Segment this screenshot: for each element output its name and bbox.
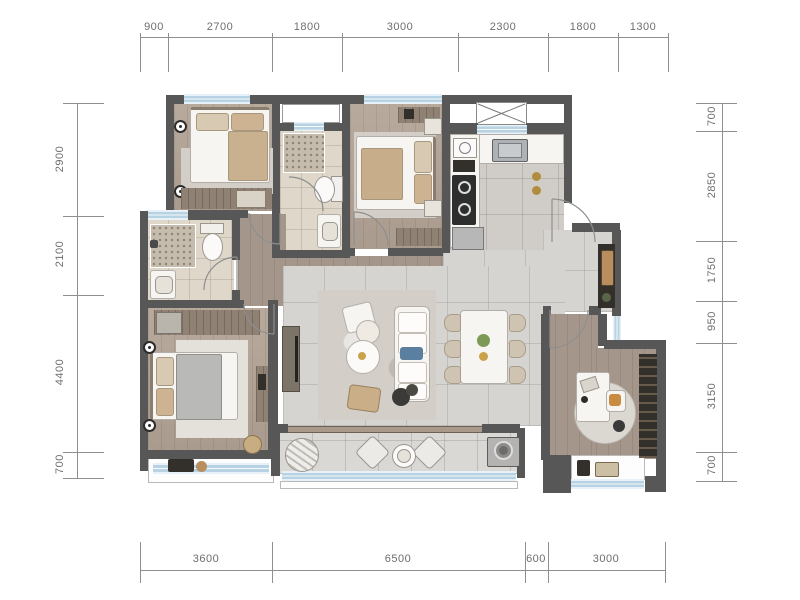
- duct-shaft: [476, 102, 527, 125]
- wall: [342, 95, 350, 258]
- sliding-door-track: [288, 426, 482, 433]
- dining-chair-icon: [444, 366, 461, 384]
- dim-tick: [140, 542, 141, 583]
- light-shaft: [282, 104, 340, 123]
- lounge-chair-icon: [285, 438, 319, 472]
- nightstand-icon: [424, 200, 442, 217]
- dim-label: 2900: [54, 131, 66, 187]
- dim-tick: [63, 295, 104, 296]
- kitchen-right-wall: [564, 95, 572, 203]
- dim-label: 1300: [613, 21, 673, 33]
- dim-label: 3000: [370, 21, 430, 33]
- dim-tick: [272, 542, 273, 583]
- floor-plan: 900 2700 1800 3000 2300 1800 1300 2900 2…: [0, 0, 800, 600]
- toilet-icon: [202, 233, 223, 261]
- dim-line-left: [77, 103, 78, 479]
- dim-tick: [668, 33, 669, 72]
- dim-label: 6500: [368, 553, 428, 565]
- fridge-icon: [452, 227, 484, 250]
- tv-icon: [295, 336, 298, 382]
- wall-lamp-icon: [143, 419, 156, 432]
- balcony-table-top-icon: [397, 449, 411, 463]
- dim-label: 700: [706, 88, 718, 144]
- dim-label: 2700: [190, 21, 250, 33]
- basin-icon: [155, 276, 173, 294]
- dim-label: 700: [706, 437, 718, 493]
- dresser-icon: [396, 228, 442, 246]
- balcony-sill: [280, 481, 518, 489]
- dim-label: 700: [54, 436, 66, 492]
- dim-label: 1800: [553, 21, 613, 33]
- dim-label: 2850: [706, 157, 718, 213]
- wall: [442, 95, 450, 253]
- shower-icon: [283, 133, 325, 173]
- dim-label: 1750: [706, 242, 718, 298]
- bathroom-b-window: [146, 210, 188, 220]
- dining-chair-icon: [444, 314, 461, 332]
- gold-bowl-icon: [358, 352, 366, 360]
- bedroom-1-left-wall: [166, 95, 174, 218]
- shower-head-icon: [150, 240, 158, 248]
- decor-icon: [404, 109, 414, 119]
- wall: [272, 95, 280, 258]
- dim-tick: [168, 33, 169, 72]
- wall-lamp-icon: [143, 341, 156, 354]
- plant-icon: [406, 384, 418, 396]
- dining-chair-icon: [509, 314, 526, 332]
- gold-knob-icon: [532, 172, 541, 181]
- stool-icon: [613, 420, 625, 432]
- dim-tick: [63, 216, 104, 217]
- chair-seat-icon: [609, 394, 621, 406]
- dim-tick: [458, 33, 459, 72]
- bookshelf-icon: [639, 354, 657, 458]
- cabinet-decor-icon: [601, 250, 614, 286]
- dim-tick: [272, 33, 273, 72]
- basin-icon: [322, 222, 338, 241]
- bathroom-a-window: [294, 122, 324, 131]
- niche-window: [613, 316, 621, 342]
- dim-label: 3600: [176, 553, 236, 565]
- wardrobe-shelf-icon: [156, 312, 182, 334]
- bedroom-2-window: [364, 94, 442, 104]
- balcony-window: [282, 471, 516, 481]
- sofa-cushion-icon: [398, 362, 427, 383]
- dim-tick: [63, 103, 104, 104]
- dining-table-icon: [460, 310, 508, 384]
- blanket-icon: [176, 354, 222, 420]
- dim-label: 2300: [473, 21, 533, 33]
- dim-line-top: [140, 37, 669, 38]
- sofa-cushion-icon: [398, 312, 427, 333]
- study-left-wall: [541, 314, 550, 460]
- dim-label: 950: [706, 293, 718, 349]
- dim-tick: [618, 33, 619, 72]
- dim-tick: [140, 33, 141, 72]
- dim-label: 3150: [706, 368, 718, 424]
- pillow-icon: [156, 388, 174, 416]
- prep-basin-icon: [459, 142, 471, 154]
- study-bay-window: [571, 479, 644, 489]
- dim-tick: [665, 542, 666, 583]
- dim-tick: [342, 33, 343, 72]
- decor-bag-icon: [196, 461, 207, 472]
- balcony-wall: [482, 424, 520, 433]
- pillow-icon: [156, 357, 174, 386]
- washer-drum-icon: [499, 446, 508, 455]
- plant-icon: [477, 334, 490, 347]
- dim-line-right: [722, 103, 723, 482]
- burner-icon: [458, 203, 471, 216]
- desk-lamp-icon: [581, 396, 588, 403]
- blanket-icon: [361, 148, 403, 200]
- sink-basin-icon: [498, 143, 522, 158]
- dim-label: 3000: [576, 553, 636, 565]
- dim-tick: [63, 478, 104, 479]
- study-bay-wall: [543, 455, 571, 493]
- stool-icon: [243, 435, 262, 454]
- dim-label: 2100: [54, 226, 66, 282]
- dining-chair-icon: [509, 340, 526, 358]
- wall: [350, 248, 355, 256]
- lounge-armchair-icon: [346, 384, 381, 413]
- bathroom-a-bottom-wall: [280, 250, 350, 258]
- pillow-icon: [414, 141, 432, 173]
- dim-line-bottom: [140, 570, 666, 571]
- bedroom-2-bottom-wall: [388, 248, 443, 256]
- decor-tray-icon: [595, 462, 619, 477]
- blanket-icon: [228, 131, 268, 181]
- balcony-left-wall: [271, 426, 280, 476]
- pillow-icon: [196, 113, 229, 131]
- blue-pillow-icon: [400, 347, 423, 360]
- spice-rack-icon: [453, 160, 475, 172]
- pillow-icon: [231, 113, 264, 131]
- study-right-wall: [656, 347, 666, 481]
- gold-bowl-icon: [479, 352, 488, 361]
- dim-tick: [63, 452, 104, 453]
- dim-label: 600: [506, 553, 566, 565]
- decor-books-icon: [168, 459, 194, 472]
- toilet-icon: [314, 176, 335, 203]
- wardrobe-shelf-icon: [236, 190, 266, 208]
- burner-icon: [458, 181, 471, 194]
- plant-icon: [602, 293, 611, 302]
- dining-chair-icon: [509, 366, 526, 384]
- kitchen-window: [477, 125, 527, 134]
- gold-knob-icon: [532, 186, 541, 195]
- study-bay-wall: [645, 476, 666, 492]
- dining-chair-icon: [444, 340, 461, 358]
- mirror-icon: [258, 374, 266, 390]
- bedroom-1-window: [184, 94, 250, 104]
- nightstand-icon: [424, 118, 442, 135]
- dim-label: 900: [124, 21, 184, 33]
- dim-label: 1800: [277, 21, 337, 33]
- wall-lamp-icon: [174, 120, 187, 133]
- dim-label: 4400: [54, 344, 66, 400]
- bathroom-b-right-wall: [232, 220, 240, 260]
- master-top-wall: [146, 300, 244, 308]
- decor-vase-icon: [577, 460, 590, 476]
- dim-tick: [548, 33, 549, 72]
